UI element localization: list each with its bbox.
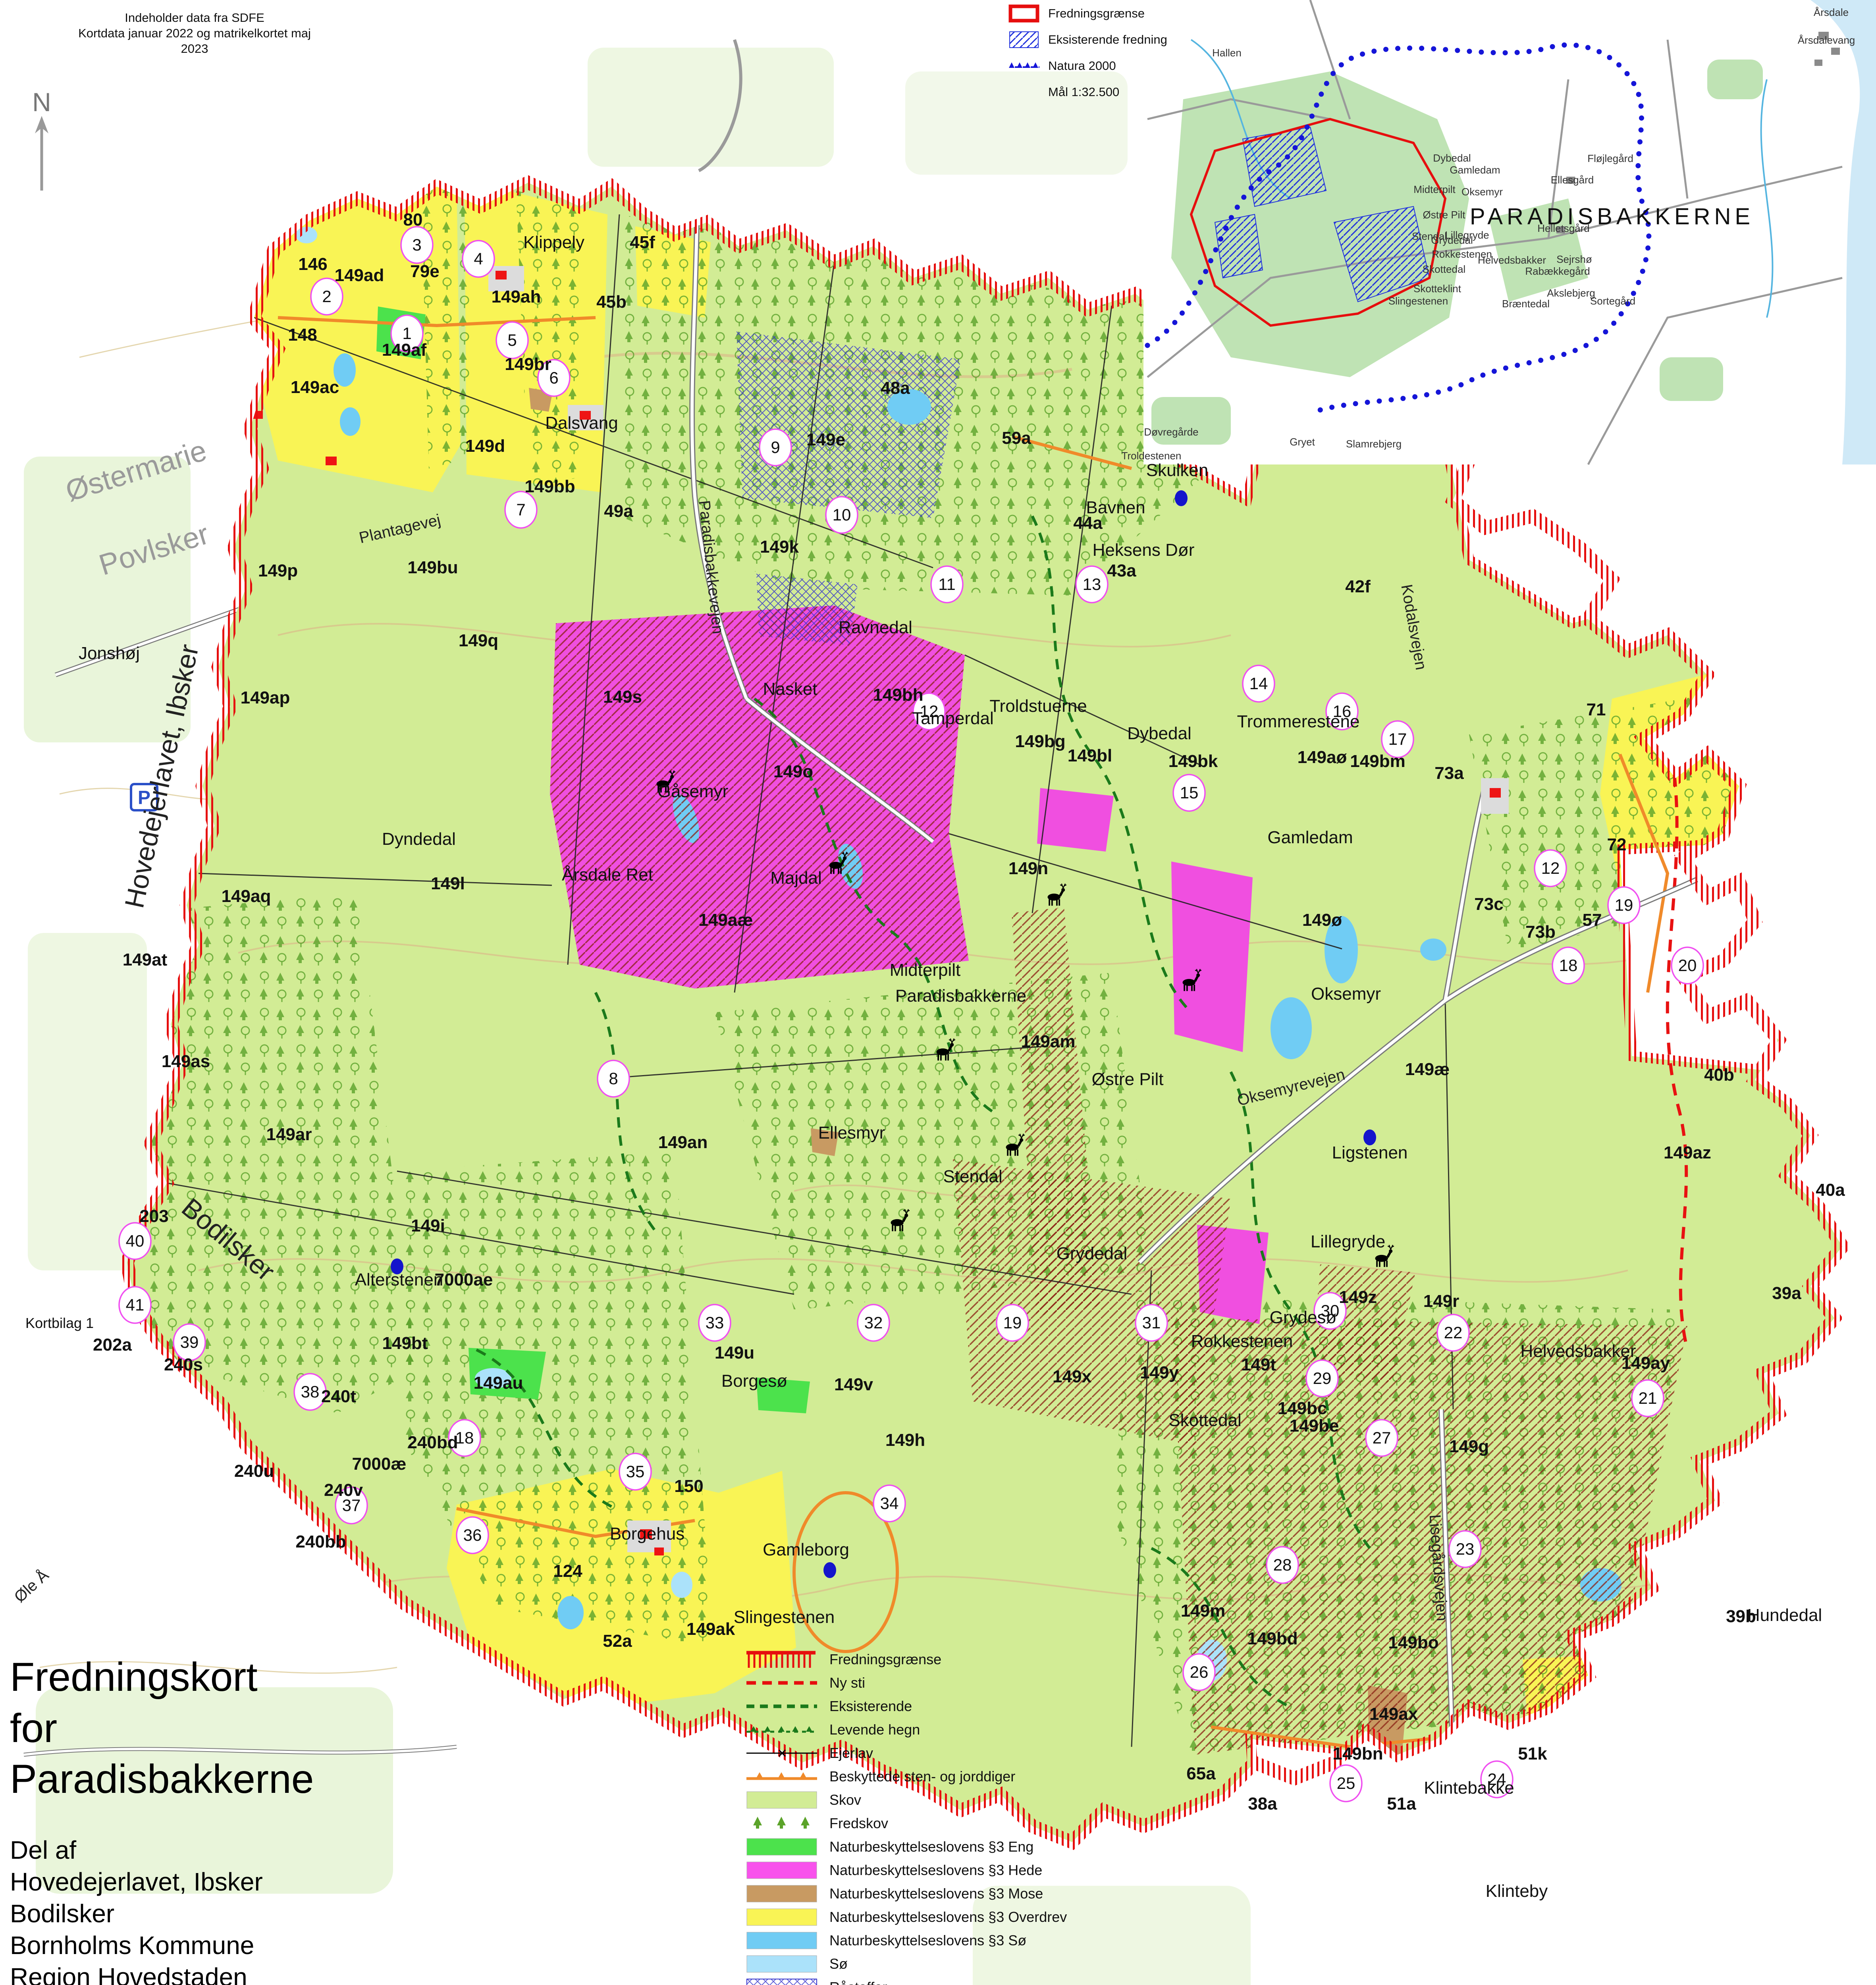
- map-label: Gamledam: [1267, 828, 1353, 847]
- legend-row: Sø: [746, 1952, 1206, 1975]
- map-label: Trommerestene: [1237, 712, 1360, 731]
- map-label: 149g: [1449, 1437, 1489, 1456]
- map-label: Heksens Dør: [1093, 540, 1195, 560]
- map-label: 149bh: [873, 685, 923, 705]
- legend-row: Råstoffer: [746, 1975, 1206, 1985]
- legend-swatch-fill: [746, 1790, 819, 1810]
- map-label: Østre Pilt: [1092, 1070, 1164, 1089]
- map-label: 149e: [806, 430, 845, 449]
- parcel-ref-number: 25: [1337, 1774, 1355, 1792]
- parcel-ref-number: 28: [1273, 1555, 1292, 1574]
- map-label: 79e: [410, 262, 439, 281]
- inset-label: Slingestenen: [1388, 295, 1448, 307]
- map-label: 43a: [1107, 561, 1136, 580]
- legend-label: Fredningsgrænse: [829, 1651, 941, 1668]
- parcel-ref-number: 4: [474, 249, 483, 268]
- map-label: 149aq: [222, 887, 271, 906]
- parcel-ref: 34: [873, 1485, 905, 1522]
- legend-label: Naturbeskyttelseslovens §3 Mose: [829, 1885, 1043, 1902]
- inset-label: Slamrebjerg: [1346, 438, 1402, 450]
- legend-label: Beskyttede sten- og jorddiger: [829, 1768, 1015, 1785]
- parcel-ref: 28: [1267, 1547, 1298, 1583]
- parcel-ref: 7: [505, 491, 537, 528]
- legend-row: Naturbeskyttelseslovens §3 Mose: [746, 1882, 1206, 1905]
- map-label: Gamleborg: [763, 1540, 849, 1559]
- map-label: 149u: [715, 1343, 754, 1363]
- inset-label: Midterpilt: [1413, 183, 1456, 195]
- parcel-ref: 21: [1632, 1380, 1664, 1416]
- map-label: Ligstenen: [1332, 1143, 1408, 1162]
- map-label: 73c: [1474, 894, 1503, 914]
- parcel-ref: 13: [1076, 566, 1108, 603]
- parcel-ref: 25: [1330, 1765, 1362, 1802]
- parcel-ref-number: 8: [609, 1069, 618, 1088]
- parcel-ref-number: 33: [706, 1313, 724, 1332]
- map-label: Stendal: [943, 1167, 1002, 1186]
- map-label: 149bm: [1350, 752, 1405, 771]
- map-label: Gåsemyr: [657, 782, 728, 801]
- parcel-ref: 9: [760, 429, 791, 466]
- parcel-ref: 33: [699, 1305, 731, 1341]
- parcel-ref: 20: [1672, 947, 1703, 984]
- map-label: 149ay: [1621, 1353, 1670, 1373]
- map-label: 149bl: [1068, 746, 1112, 765]
- map-label: 240bd: [407, 1433, 458, 1452]
- map-label: 7000æ: [352, 1454, 406, 1474]
- map-label: 73a: [1434, 763, 1464, 783]
- legend-label: Levende hegn: [829, 1721, 920, 1738]
- map-label: 38a: [1248, 1794, 1277, 1813]
- inset-label: Akslebjerg: [1547, 287, 1595, 299]
- map-label: Paradisbakkerne: [895, 986, 1026, 1006]
- map-label: Skottedal: [1168, 1411, 1241, 1430]
- map-label: 59a: [1002, 428, 1031, 448]
- map-label: Nasket: [763, 679, 817, 699]
- legend-row: Naturbeskyttelseslovens §3 Overdrev: [746, 1905, 1206, 1929]
- parcel-ref-number: 38: [301, 1382, 320, 1401]
- map-label: 149br: [505, 355, 551, 374]
- parcel-ref-number: 19: [1003, 1313, 1022, 1332]
- inset-label: Østre Pilt: [1423, 209, 1466, 221]
- parcel-ref-number: 1: [402, 324, 411, 343]
- legend-swatch-hegn: [746, 1720, 819, 1740]
- inset-label: Rabækkegård: [1525, 265, 1590, 277]
- map-label: 71: [1587, 700, 1606, 719]
- parcel-ref-number: 35: [626, 1462, 645, 1481]
- parcel-ref-number: 40: [126, 1231, 145, 1250]
- map-label: 240s: [164, 1355, 203, 1374]
- legend-label: Sø: [829, 1956, 848, 1972]
- map-sheet: P N: [0, 0, 1876, 1985]
- north-label: N: [32, 87, 51, 117]
- map-label: 39b: [1726, 1607, 1756, 1626]
- subtitle-line1: Del af: [10, 1834, 314, 1866]
- map-label: 149at: [123, 950, 168, 969]
- map-label: 149d: [465, 436, 505, 456]
- parcel-ref-number: 15: [1180, 783, 1199, 802]
- inset-legend-swatch-bluehatch: [1008, 31, 1039, 49]
- map-label: 149z: [1339, 1287, 1377, 1307]
- parcel-ref-number: 18: [1559, 956, 1578, 975]
- legend-swatch-fill: [746, 1837, 819, 1857]
- parcel-ref-number: 17: [1388, 730, 1407, 748]
- map-label: 7000ae: [435, 1270, 493, 1289]
- parcel-ref-number: 21: [1639, 1389, 1657, 1407]
- map-label: 149k: [760, 537, 799, 557]
- parcel-ref: 23: [1449, 1531, 1481, 1567]
- legend-swatch-dashred: [746, 1673, 819, 1693]
- inset-legend-row: Eksisterende fredning: [1008, 29, 1145, 50]
- legend-swatch-fill: [746, 1931, 819, 1950]
- legend-label: Naturbeskyttelseslovens §3 Eng: [829, 1839, 1033, 1855]
- parcel-ref: 35: [619, 1453, 651, 1490]
- map-label: Grydesø: [1270, 1308, 1337, 1327]
- legend-label: Skov: [829, 1792, 861, 1808]
- inset-label: Ellesgård: [1551, 174, 1594, 186]
- map-label: 149bc: [1278, 1399, 1327, 1418]
- map-label: Borgesø: [721, 1371, 787, 1391]
- legend-row: Naturbeskyttelseslovens §3 Eng: [746, 1835, 1206, 1858]
- parcel-ref: 19: [1608, 887, 1640, 923]
- map-label: 149y: [1140, 1363, 1179, 1382]
- map-label: Majdal: [770, 868, 822, 888]
- parcel-ref-number: 12: [1541, 859, 1560, 877]
- inset-label: Gryet: [1290, 436, 1315, 448]
- parcel-ref: 19: [997, 1305, 1028, 1341]
- map-title-line3: Paradisbakkerne: [10, 1754, 314, 1805]
- inset-legend-label: Mål 1:32.500: [1048, 85, 1119, 99]
- inset-map: [1143, 0, 1876, 464]
- inset-label: Skotteklint: [1413, 283, 1461, 295]
- parcel-ref: 29: [1306, 1360, 1338, 1397]
- map-label: 149an: [658, 1133, 708, 1152]
- map-label: Oksemyr: [1311, 984, 1381, 1004]
- inset-legend-swatch-redrect: [1008, 4, 1039, 23]
- map-label: 146: [298, 254, 327, 274]
- parcel-ref-number: 19: [1615, 896, 1633, 914]
- map-legend: FredningsgrænseNy stiEksisterendeLevende…: [746, 1648, 1206, 1985]
- legend-swatch-ejerlav: [746, 1743, 819, 1763]
- map-label: 149ah: [492, 287, 541, 306]
- legend-row: Beskyttede sten- og jorddiger: [746, 1765, 1206, 1788]
- map-label: 124: [553, 1561, 582, 1581]
- subtitle-line4: Bornholms Kommune: [10, 1929, 314, 1961]
- parcel-ref-number: 14: [1249, 674, 1268, 693]
- inset-legend-swatch-none: [1008, 83, 1039, 101]
- map-label: 72: [1607, 835, 1627, 854]
- legend-label: Naturbeskyttelseslovens §3 Sø: [829, 1932, 1026, 1949]
- parcel-ref: 14: [1243, 665, 1274, 702]
- parcel-ref-number: 11: [938, 575, 956, 594]
- map-label: 80: [403, 210, 423, 229]
- subtitle-line5: Region Hovedstaden: [10, 1961, 314, 1985]
- map-label: Dalsvang: [545, 413, 618, 433]
- inset-label: Hallen: [1212, 47, 1242, 59]
- inset-label: Helletsgård: [1537, 222, 1590, 234]
- inset-legend-swatch-natura: [1008, 57, 1039, 75]
- map-label: 149be: [1290, 1416, 1339, 1436]
- map-label: 149am: [1021, 1032, 1075, 1051]
- map-label: 149ac: [291, 378, 339, 397]
- parcel-ref: 12: [1535, 850, 1566, 887]
- map-label: 149ar: [266, 1125, 312, 1144]
- map-label: Jonshøj: [79, 644, 140, 663]
- map-label: 149p: [258, 561, 298, 580]
- map-label: 149m: [1181, 1601, 1226, 1621]
- map-label: Alterstenen: [355, 1270, 443, 1289]
- map-label: 149aø: [1298, 748, 1347, 767]
- map-label: 149bb: [524, 477, 575, 496]
- legend-swatch-trees: [746, 1813, 819, 1833]
- map-title-line2: for: [10, 1703, 314, 1754]
- inset-legend-row: Natura 2000: [1008, 56, 1145, 76]
- map-label: 149q: [459, 631, 498, 650]
- parcel-ref-number: 32: [864, 1313, 883, 1332]
- legend-row: Skov: [746, 1788, 1206, 1812]
- map-label: 149bn: [1332, 1744, 1383, 1763]
- parcel-ref-number: 36: [463, 1526, 482, 1544]
- legend-swatch-fill: [746, 1907, 819, 1927]
- map-label: 48a: [881, 378, 910, 398]
- map-label: Dyndedal: [382, 829, 456, 849]
- fortidsminde-dot: [1175, 490, 1188, 506]
- subtitle-line3: Bodilsker: [10, 1898, 314, 1929]
- note-line1: Indeholder data fra SDFE: [67, 10, 322, 26]
- map-label: 149ad: [335, 266, 384, 285]
- inset-legend-label: Natura 2000: [1048, 59, 1116, 73]
- parcel-ref-number: 3: [412, 235, 421, 254]
- parcel-ref: 18: [1552, 947, 1584, 984]
- map-label: Slingestenen: [734, 1607, 835, 1627]
- parcel-ref-number: 5: [507, 331, 517, 349]
- parcel-ref-number: 9: [771, 438, 780, 457]
- inset-label: Sortegård: [1590, 295, 1635, 307]
- legend-row: Naturbeskyttelseslovens §3 Sø: [746, 1929, 1206, 1952]
- map-label: Borgehus: [610, 1524, 684, 1544]
- legend-row: Naturbeskyttelseslovens §3 Hede: [746, 1858, 1206, 1882]
- parcel-ref-number: 22: [1444, 1323, 1463, 1342]
- map-label: 149bk: [1168, 752, 1218, 771]
- parcel-ref: 8: [598, 1060, 629, 1097]
- inset-legend-row: Mål 1:32.500: [1008, 82, 1145, 102]
- map-label: Årsdale Ret: [562, 865, 653, 885]
- legend-label: Ny sti: [829, 1675, 865, 1691]
- map-label: 52a: [603, 1631, 632, 1651]
- legend-swatch-comb: [746, 1650, 819, 1669]
- inset-title: PARADISBAKKERNE: [1470, 204, 1754, 229]
- inset-legend: FredningsgrænseEksisterende fredningNatu…: [1008, 3, 1145, 108]
- inset-label: Årsdalevang: [1798, 34, 1855, 46]
- map-label: 39a: [1772, 1284, 1801, 1303]
- map-label: 240v: [324, 1480, 363, 1500]
- note-line2: Kortdata januar 2022 og matrikelkortet m…: [67, 26, 322, 57]
- map-label: 149ø: [1302, 910, 1342, 930]
- map-label: 149az: [1664, 1143, 1711, 1162]
- parcel-ref-number: 2: [322, 287, 331, 306]
- parcel-ref: 32: [858, 1305, 889, 1341]
- map-label: Helvedsbakker: [1520, 1341, 1636, 1361]
- map-label: Troldstuerne: [989, 696, 1087, 716]
- map-label: 149au: [474, 1373, 523, 1393]
- parcel-ref-number: 34: [880, 1494, 899, 1513]
- legend-row: Ny sti: [746, 1671, 1206, 1694]
- map-label: Tamperdal: [912, 709, 993, 728]
- inset-label: Oksemyr: [1461, 186, 1503, 198]
- map-label: 149af: [382, 340, 427, 360]
- parcel-ref: 3: [401, 227, 433, 263]
- map-label: 150: [674, 1476, 703, 1496]
- map-label: 149s: [603, 687, 642, 707]
- fortidsminde-dot: [823, 1562, 836, 1578]
- map-label: Hundedal: [1747, 1605, 1822, 1625]
- legend-label: Eksisterende: [829, 1698, 912, 1715]
- map-label: 149l: [431, 874, 465, 893]
- inset-label: Rokkestenen: [1432, 248, 1492, 260]
- parcel-ref: 10: [826, 497, 858, 533]
- map-label: 240t: [321, 1387, 356, 1406]
- map-label: Grydedal: [1057, 1244, 1128, 1263]
- subtitle-line2: Hovedejerlavet, Ibsker: [10, 1866, 314, 1898]
- map-label: 57: [1583, 910, 1602, 930]
- map-label: Ravnedal: [839, 618, 912, 637]
- legend-swatch-xblue: [746, 1977, 819, 1985]
- map-label: 149t: [1241, 1355, 1276, 1374]
- legend-label: Fredskov: [829, 1815, 888, 1832]
- map-label: Klippely: [523, 233, 584, 252]
- map-label: Klintebakke: [1424, 1778, 1514, 1798]
- parcel-ref-number: 20: [1678, 956, 1697, 975]
- map-label: 149bo: [1388, 1633, 1438, 1652]
- legend-row: Levende hegn: [746, 1718, 1206, 1741]
- legend-swatch-fill: [746, 1860, 819, 1880]
- parcel-ref-number: 29: [1313, 1369, 1332, 1388]
- map-label: 240u: [234, 1461, 274, 1481]
- map-label: 49a: [604, 501, 633, 521]
- map-label: Klinteby: [1486, 1881, 1548, 1901]
- parcel-ref: 41: [119, 1287, 151, 1323]
- map-label: 149o: [773, 762, 813, 781]
- inset-label: Gamledam: [1450, 164, 1500, 176]
- parcel-ref: 5: [496, 322, 528, 358]
- inset-legend-label: Eksisterende fredning: [1048, 33, 1167, 47]
- legend-label: Råstoffer: [829, 1979, 887, 1985]
- parcel-ref: 22: [1437, 1314, 1469, 1351]
- map-label: 149bg: [1015, 732, 1065, 751]
- legend-swatch-fill: [746, 1954, 819, 1974]
- parcel-ref: 31: [1136, 1305, 1167, 1341]
- map-label: 149æ: [1405, 1060, 1450, 1079]
- map-title-line1: Fredningskort: [10, 1652, 314, 1703]
- inset-label: Årsdale: [1814, 6, 1849, 18]
- parcel-ref: 11: [931, 566, 963, 603]
- map-label: 42f: [1345, 577, 1371, 596]
- inset-label: Bræntedal: [1502, 298, 1550, 310]
- map-label: 51k: [1518, 1744, 1547, 1763]
- parcel-ref-number: 7: [516, 500, 525, 519]
- legend-row: Eksisterende: [746, 1694, 1206, 1718]
- parcel-ref: 40: [119, 1223, 151, 1259]
- map-label: 40b: [1704, 1065, 1734, 1085]
- parcel-ref: 36: [457, 1517, 488, 1553]
- inset-label: Stendal: [1412, 230, 1447, 242]
- map-label: 149h: [885, 1430, 925, 1450]
- inset-label: Sejrshø: [1556, 253, 1592, 265]
- inset-label: Troldestenen: [1122, 450, 1182, 462]
- map-label: 149ax: [1369, 1704, 1418, 1724]
- parcel-ref: 4: [463, 241, 494, 277]
- map-label: 149bu: [407, 558, 458, 577]
- parcel-ref-number: 41: [126, 1295, 145, 1314]
- map-label: 51a: [1387, 1794, 1416, 1813]
- map-label: 149ap: [241, 688, 290, 707]
- map-label: 240bb: [295, 1532, 346, 1551]
- map-label: 45b: [596, 292, 627, 312]
- map-label: 203: [139, 1206, 168, 1226]
- legend-label: Naturbeskyttelseslovens §3 Hede: [829, 1862, 1042, 1879]
- parcel-ref-number: 18: [455, 1428, 474, 1447]
- map-label: 148: [288, 325, 317, 345]
- parcel-ref: 27: [1366, 1420, 1398, 1456]
- map-label: Lillegryde: [1311, 1232, 1385, 1251]
- map-label: 149v: [834, 1375, 873, 1394]
- legend-label: Ejerlav: [829, 1745, 873, 1761]
- map-label: 149as: [162, 1052, 210, 1071]
- map-label: 149r: [1423, 1291, 1460, 1311]
- map-label: 149n: [1008, 859, 1048, 878]
- parcel-ref-number: 10: [833, 505, 851, 524]
- inset-label: Fløjlegård: [1587, 152, 1633, 164]
- parcel-ref-number: 27: [1373, 1428, 1391, 1447]
- legend-row: Fredskov: [746, 1812, 1206, 1835]
- map-label: 73b: [1525, 922, 1556, 942]
- map-label: 149ak: [686, 1619, 735, 1639]
- inset-legend-row: Fredningsgrænse: [1008, 3, 1145, 24]
- title-block: Fredningskort for Paradisbakkerne Del af…: [10, 1652, 314, 1985]
- map-label: Dybedal: [1127, 724, 1191, 743]
- legend-swatch-dashgreen: [746, 1696, 819, 1716]
- inset-label: Skottedal: [1423, 263, 1465, 275]
- map-label: Ellesmyr: [818, 1123, 885, 1143]
- map-label: 149aæ: [698, 910, 753, 930]
- parcel-ref-number: 31: [1142, 1313, 1161, 1332]
- parcel-ref-number: 39: [180, 1333, 199, 1351]
- legend-row: Fredningsgrænse: [746, 1648, 1206, 1671]
- parcel-ref-number: 23: [1456, 1540, 1475, 1558]
- legend-swatch-fill: [746, 1884, 819, 1904]
- map-label: 149bt: [382, 1334, 428, 1353]
- map-label: 44a: [1073, 513, 1103, 533]
- legend-row: Ejerlav: [746, 1741, 1206, 1765]
- map-label: 149bd: [1247, 1629, 1298, 1648]
- inset-label: Dybedal: [1433, 152, 1471, 164]
- map-label: 45f: [630, 233, 655, 252]
- map-label: 40a: [1816, 1180, 1845, 1200]
- legend-label: Naturbeskyttelseslovens §3 Overdrev: [829, 1909, 1067, 1925]
- map-label: 202a: [93, 1335, 132, 1355]
- inset-label: Døvregårde: [1144, 426, 1198, 438]
- inset-legend-label: Fredningsgrænse: [1048, 6, 1145, 21]
- parcel-ref: 15: [1173, 775, 1205, 811]
- legend-swatch-dige: [746, 1767, 819, 1786]
- parcel-ref-number: 13: [1083, 575, 1101, 594]
- map-label: Skulken: [1146, 461, 1209, 480]
- map-label: 149x: [1053, 1367, 1091, 1386]
- map-label: Kortbilag 1: [25, 1315, 94, 1331]
- map-label: Rokkestenen: [1191, 1332, 1293, 1351]
- data-source-note: Indeholder data fra SDFE Kortdata januar…: [67, 10, 322, 56]
- map-label: 149i: [411, 1216, 445, 1235]
- map-label: Midterpilt: [890, 960, 961, 980]
